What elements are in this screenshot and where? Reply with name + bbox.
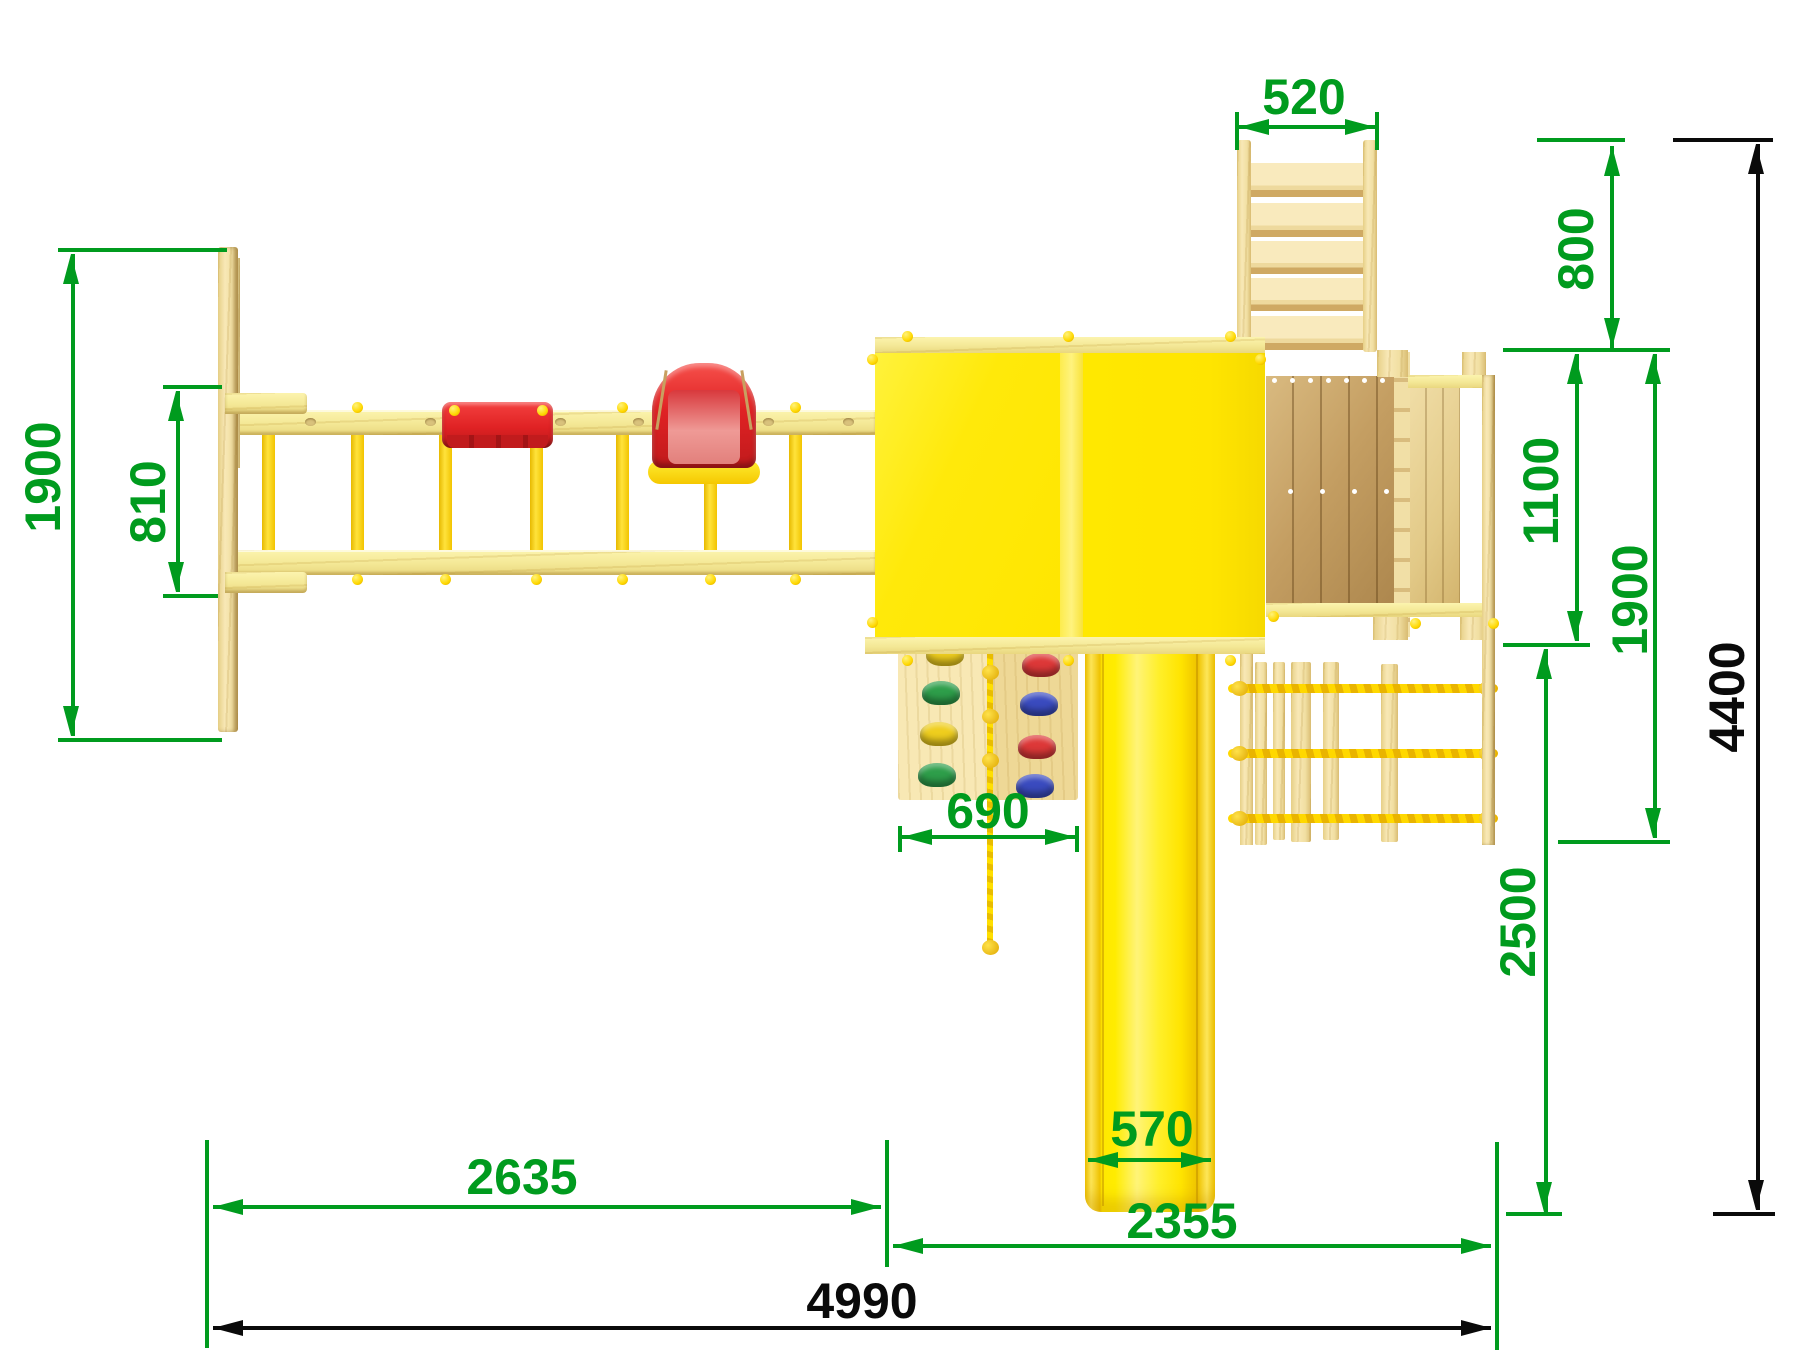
dim-tick [163, 385, 222, 389]
deck-planks [1266, 376, 1408, 612]
ladder-step [1251, 203, 1363, 237]
swing-post [262, 430, 275, 554]
swing-aframe-bracket-top [225, 393, 307, 414]
roof-knob [867, 617, 878, 628]
roof-knob [1255, 354, 1266, 365]
dim-arrow [1645, 354, 1661, 384]
dim-label: 2500 [1493, 862, 1543, 982]
dim-arrow [851, 1199, 881, 1215]
dim-arrow [1567, 354, 1583, 384]
net-knot [1231, 746, 1248, 761]
dim-label: 4400 [1702, 637, 1752, 757]
dim-label: 2355 [1107, 1196, 1257, 1246]
swing-post [789, 430, 802, 554]
frame-knob [1268, 611, 1279, 622]
roof-knob [1063, 331, 1074, 342]
ladder-step [1251, 278, 1363, 311]
dim-tick [1713, 1212, 1775, 1216]
screw-dot [1320, 489, 1325, 494]
dim-tick [58, 248, 227, 252]
dim-tick [205, 1140, 209, 1348]
net-knot [1231, 811, 1248, 826]
climb-hold-yellow [920, 722, 958, 746]
dim-line [71, 254, 75, 736]
net-rope [1228, 749, 1498, 758]
dim-label: 2635 [447, 1152, 597, 1202]
dim-label: 570 [1082, 1104, 1222, 1154]
rail-hole [763, 418, 774, 426]
dim-label: 4990 [787, 1276, 937, 1326]
dim-arrow [893, 1238, 923, 1254]
roof-knob [902, 655, 913, 666]
deck-corner-block [1462, 352, 1486, 377]
screw-dot [1308, 378, 1313, 383]
dim-tick [1503, 643, 1590, 647]
dim-label: 690 [918, 786, 1058, 836]
screw-dot [1352, 489, 1357, 494]
screw-dot [1380, 378, 1385, 383]
deck-foot-block [1373, 617, 1408, 640]
dim-tick [1495, 1142, 1499, 1350]
post-knob [440, 574, 451, 585]
post-knob [531, 574, 542, 585]
rope-knot [982, 940, 999, 955]
post-knob [352, 402, 363, 413]
screw-dot [1326, 378, 1331, 383]
screw-dot [1290, 378, 1295, 383]
climb-hold-red [1022, 653, 1060, 677]
frame-knob [1410, 618, 1421, 629]
dim-arrow [63, 254, 79, 284]
baby-swing-inner [668, 390, 740, 464]
swing-post [530, 430, 543, 554]
dim-tick [163, 594, 218, 598]
dim-arrow [1461, 1320, 1491, 1336]
roof-knob [1225, 331, 1236, 342]
dim-arrow [1536, 1182, 1552, 1212]
dim-tick [1558, 840, 1670, 844]
dim-tick [1075, 826, 1079, 852]
ladder-step [1251, 316, 1363, 350]
dim-tick [1537, 138, 1625, 142]
dim-label: 1100 [1516, 431, 1566, 551]
post-knob [790, 574, 801, 585]
dim-line [1756, 144, 1760, 1210]
swing-post [616, 430, 629, 554]
deck-corner-block [1377, 350, 1408, 377]
net-rope [1228, 814, 1498, 823]
swing-aframe-bracket-bottom [225, 572, 307, 593]
flat-swing-seat-lower [447, 435, 548, 448]
dim-label: 520 [1234, 72, 1374, 122]
deck-frame-post [1394, 352, 1410, 637]
dim-tick [1673, 138, 1773, 142]
dim-arrow [1604, 146, 1620, 176]
dim-arrow [1645, 808, 1661, 838]
tower-bottom-beam [865, 637, 1265, 654]
rail-hole [555, 418, 566, 426]
dim-tick [58, 738, 222, 742]
ladder-rail-left [1237, 140, 1251, 352]
post-knob [705, 574, 716, 585]
climb-hold-green [922, 681, 960, 705]
rail-hole [843, 418, 854, 426]
dim-arrow [1748, 144, 1764, 174]
rope-knot [982, 709, 999, 724]
roof-knob [867, 354, 878, 365]
dim-tick [1506, 1212, 1562, 1216]
dim-arrow [213, 1320, 243, 1336]
dim-tick [1375, 112, 1379, 150]
seat-bolt [449, 405, 460, 416]
screw-dot [1272, 378, 1277, 383]
dim-line [213, 1205, 881, 1209]
rail-hole [305, 418, 316, 426]
post-knob [790, 402, 801, 413]
screw-dot [1384, 489, 1389, 494]
roof-knob [902, 331, 913, 342]
dim-arrow [168, 391, 184, 421]
seat-bolt [537, 405, 548, 416]
screw-dot [1362, 378, 1367, 383]
dim-arrow [63, 706, 79, 736]
right-aframe-plank [1482, 375, 1495, 845]
deck-under-beam [1266, 603, 1494, 617]
deck-side-panel [1410, 388, 1460, 612]
rope-knot [982, 665, 999, 680]
dim-label: 1900 [1605, 540, 1655, 660]
tower-roof-ridge [1060, 353, 1083, 637]
dim-arrow [1748, 1180, 1764, 1210]
screw-dot [1288, 489, 1293, 494]
post-knob [352, 574, 363, 585]
dim-arrow [213, 1199, 243, 1215]
dim-label: 800 [1551, 189, 1601, 309]
tower-roof-left-panel [875, 353, 1060, 637]
frame-knob [1488, 618, 1499, 629]
swing-aframe-plank [218, 247, 238, 732]
dim-label: 1900 [18, 417, 68, 537]
roof-knob [1225, 655, 1236, 666]
dim-line [1575, 354, 1579, 641]
post-knob [617, 402, 628, 413]
swing-bottom-rail [218, 550, 875, 575]
ladder-step [1251, 241, 1363, 274]
climb-hold-blue [1020, 692, 1058, 716]
dim-tick [1503, 348, 1670, 352]
rail-hole [425, 418, 436, 426]
dim-arrow [1536, 649, 1552, 679]
net-knot [1231, 681, 1248, 696]
swing-post [439, 430, 452, 554]
dim-label: 810 [123, 442, 173, 562]
post-knob [617, 574, 628, 585]
rope-knot [982, 753, 999, 768]
ladder-rail-right [1363, 140, 1377, 352]
net-rope [1228, 684, 1498, 693]
tower-roof-right-panel [1083, 353, 1265, 637]
screw-dot [1344, 378, 1349, 383]
roof-knob [1063, 655, 1074, 666]
climb-hold-red [1018, 735, 1056, 759]
swing-post [351, 430, 364, 554]
dim-arrow [168, 562, 184, 592]
ladder-step [1251, 163, 1363, 197]
dim-tick [885, 1140, 889, 1267]
dim-arrow [1604, 318, 1620, 348]
dim-arrow [1461, 1238, 1491, 1254]
drawing-canvas: 520 800 1100 1900 2500 [0, 0, 1800, 1353]
dim-arrow [1567, 611, 1583, 641]
rail-hole [633, 418, 644, 426]
